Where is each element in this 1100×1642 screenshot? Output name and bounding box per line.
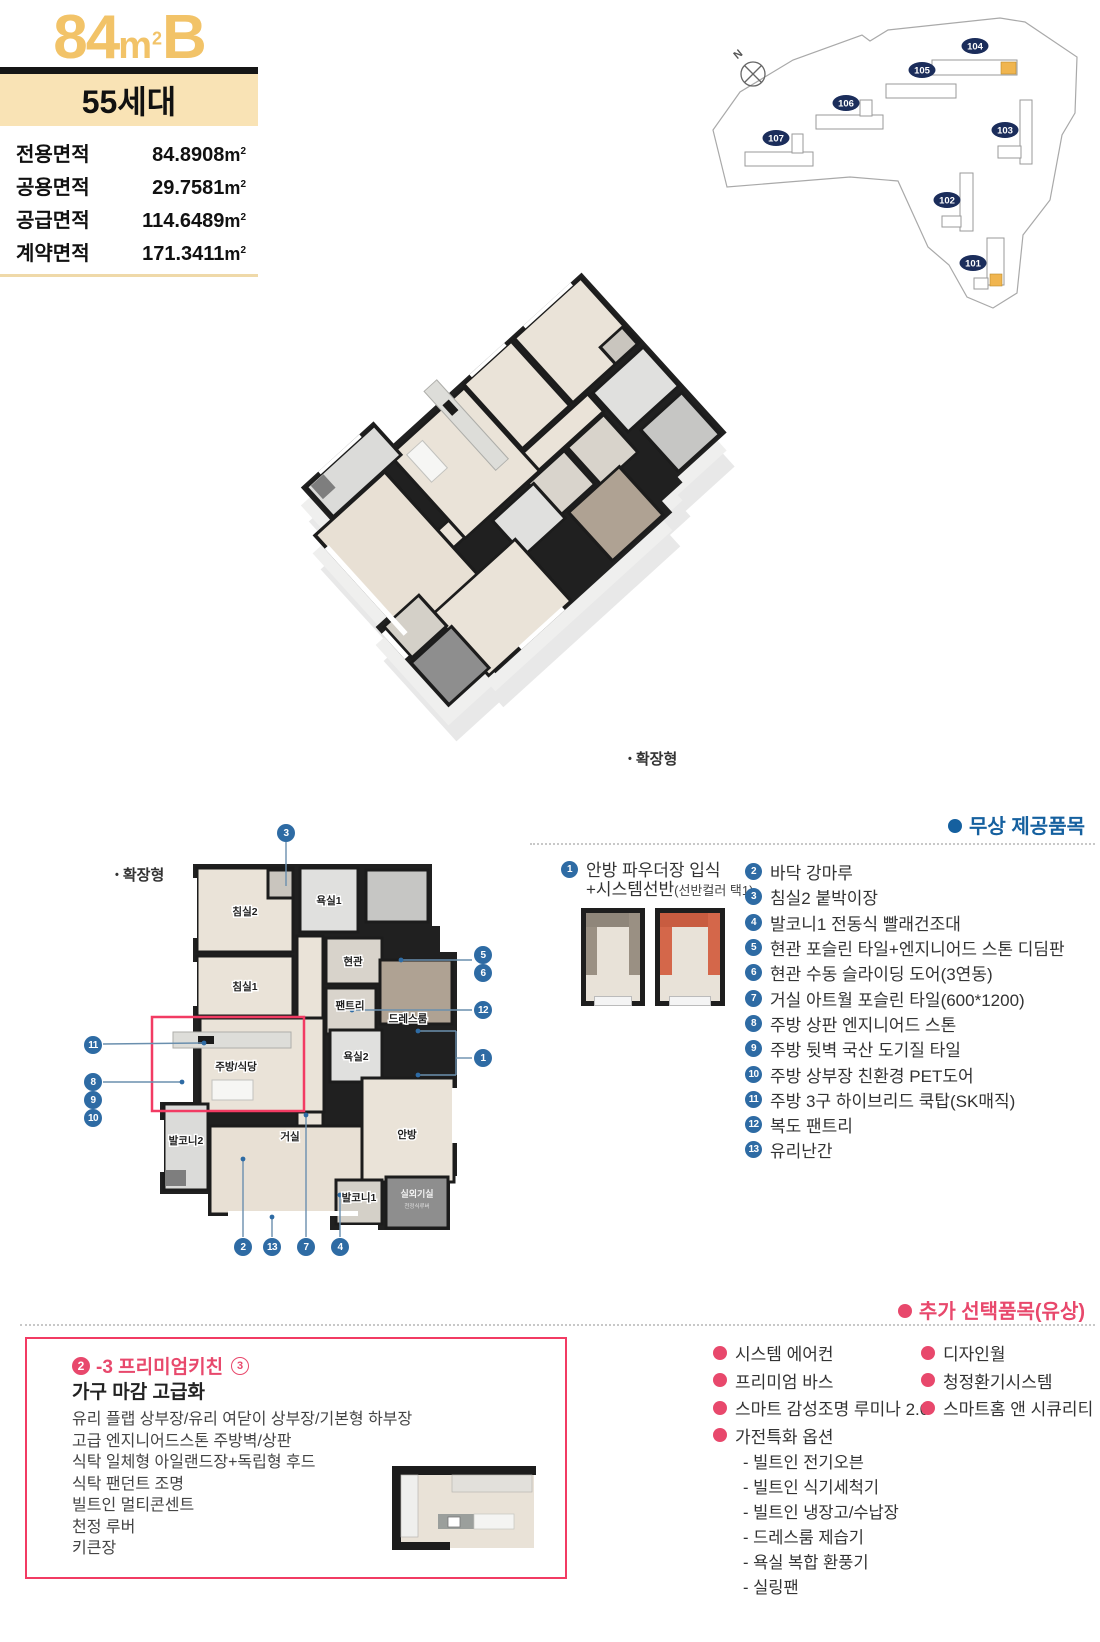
compass-north-label: N <box>732 47 746 61</box>
badge-102: 102 <box>934 192 961 208</box>
svg-text:101: 101 <box>965 259 982 270</box>
spec-line: 천정 루버 <box>72 1517 412 1539</box>
plan-callout-2: 2 <box>234 1238 252 1256</box>
pink-dot-icon <box>713 1373 727 1387</box>
free-item-row: 9주방 뒷벽 국산 도기질 타일 <box>745 1036 1065 1061</box>
paid-items-header: 추가 선택품목(유상) <box>830 1295 1085 1324</box>
free-item-row: 11주방 3구 하이브리드 쿡탑(SK매직) <box>745 1087 1065 1112</box>
unit-area-unit: m2 <box>118 25 162 67</box>
paid-option: 시스템 에어컨 <box>713 1339 929 1367</box>
sub-option: - 드레스룸 제습기 <box>743 1526 929 1551</box>
free-item-1-line1: 안방 파우더장 입식 <box>586 861 753 880</box>
shelf-right <box>708 913 720 975</box>
badge-106: 106 <box>833 95 860 111</box>
item-number-badge: 9 <box>745 1040 762 1057</box>
free-item-row: 2바닥 강마루 <box>745 859 1065 884</box>
pink-dot-icon <box>713 1428 727 1442</box>
spec-line: 식탁 팬던트 조명 <box>72 1474 412 1496</box>
plan-callout-7: 7 <box>297 1238 315 1256</box>
svg-text:106: 106 <box>838 99 854 110</box>
svg-text:107: 107 <box>768 134 784 145</box>
spec-line: 유리 플랩 상부장/유리 여닫이 상부장/기본형 하부장 <box>72 1409 412 1431</box>
free-item-row: 6현관 수동 슬라이딩 도어(3연동) <box>745 960 1065 985</box>
door-opening <box>594 996 632 1006</box>
badge-107: 107 <box>763 130 790 146</box>
pink-dot-icon <box>921 1401 935 1415</box>
paid-option: 디자인월 <box>921 1339 1093 1367</box>
free-item-1-line2: +시스템선반(선반컬러 택1) <box>586 880 753 900</box>
svg-text:103: 103 <box>997 126 1013 137</box>
pink-dot-icon <box>921 1373 935 1387</box>
circle-number-badge: 2 <box>72 1357 90 1375</box>
plan-callout-13: 13 <box>263 1238 281 1256</box>
label-bedroom1: 침실1 <box>232 980 257 993</box>
item-number-badge: 6 <box>745 964 762 981</box>
paid-option: 가전특화 옵션 <box>713 1422 929 1450</box>
label-master: 안방 <box>397 1128 417 1141</box>
area-row: 공용면적 29.7581m2 <box>0 171 258 204</box>
free-item-row: 3침실2 붙박이장 <box>745 884 1065 909</box>
plan-callout-8: 8 <box>84 1073 102 1091</box>
item-number-badge: 3 <box>745 888 762 905</box>
area-row: 공급면적 114.6489m2 <box>0 204 258 237</box>
paid-option: 프리미엄 바스 <box>713 1367 929 1395</box>
badge-104: 104 <box>962 38 989 54</box>
area-row: 전용면적 84.8908m2 <box>0 138 258 171</box>
free-item-row: 12복도 팬트리 <box>745 1112 1065 1137</box>
pink-dot-icon <box>898 1304 912 1318</box>
free-item-row: 8주방 상판 엔지니어드 스톤 <box>745 1011 1065 1036</box>
premium-kitchen-specs: 유리 플랩 상부장/유리 여닫이 상부장/기본형 하부장 고급 엔지니어드스톤 … <box>72 1409 412 1560</box>
label-living: 거실 <box>280 1130 299 1143</box>
free-item-row: 7거실 아트월 포슬린 타일(600*1200) <box>745 985 1065 1010</box>
free-item-row: 4발코니1 전동식 빨래건조대 <box>745 910 1065 935</box>
powder-option-thumbnail-2 <box>655 908 725 1006</box>
plan-callout-9: 9 <box>84 1091 102 1109</box>
item-number-badge: 10 <box>745 1066 762 1083</box>
premium-kitchen-box: 2 -3 프리미엄키친 3 가구 마감 고급화 유리 플랩 상부장/유리 여닫이… <box>25 1337 567 1579</box>
free-item-1: 1 안방 파우더장 입식 +시스템선반(선반컬러 택1) <box>561 861 753 900</box>
paid-options-col2: 디자인월 청정환기시스템 스마트홈 앤 시큐리티 <box>921 1339 1093 1422</box>
powder-option-thumbnail-1 <box>581 908 645 1006</box>
item-number-badge: 8 <box>745 1015 762 1032</box>
item-number-badge: 11 <box>745 1091 762 1108</box>
plan-callout-4: 4 <box>331 1238 349 1256</box>
sub-option: - 실링팬 <box>743 1576 929 1601</box>
spec-line: 고급 엔지니어드스톤 주방벽/상판 <box>72 1431 412 1453</box>
premium-kitchen-title: 2 -3 프리미엄키친 3 <box>72 1352 249 1379</box>
pink-dot-icon <box>713 1401 727 1415</box>
plan3d-type-label: •확장형 <box>628 748 677 769</box>
free-items-divider <box>530 843 1095 845</box>
highlight-unit-101 <box>990 274 1002 286</box>
highlight-unit-104 <box>1001 62 1016 74</box>
item-number-badge: 7 <box>745 990 762 1007</box>
plan-callout-1: 1 <box>474 1049 492 1067</box>
plan-callout-10: 10 <box>84 1109 102 1127</box>
spec-line: 식탁 일체형 아일랜드장+독립형 후드 <box>72 1452 412 1474</box>
paid-items-divider <box>20 1324 1095 1326</box>
area-row: 계약면적 171.3411m2 <box>0 237 258 270</box>
label-outdoor-unit-sub: 천정식루버 <box>404 1202 429 1210</box>
plan2d-type-label: •확장형 <box>115 864 164 885</box>
plan-callout-5: 5 <box>474 946 492 964</box>
sub-option: - 빌트인 전기오븐 <box>743 1451 929 1476</box>
label-bedroom2: 침실2 <box>232 905 257 918</box>
blue-dot-icon <box>948 819 962 833</box>
unit-title: 84m2B <box>0 2 258 73</box>
label-kitchen: 주방/식당 <box>215 1060 257 1073</box>
label-pantry: 팬트리 <box>336 999 365 1012</box>
floorplan-3d-geometry <box>272 251 741 712</box>
free-item-row: 5현관 포슬린 타일+엔지니어드 스톤 디딤판 <box>745 935 1065 960</box>
spec-line: 키큰장 <box>72 1538 412 1560</box>
svg-text:105: 105 <box>914 66 931 77</box>
label-bath2: 욕실2 <box>343 1050 368 1063</box>
unit-number: 84 <box>53 3 118 72</box>
free-item-row: 10주방 상부장 친환경 PET도어 <box>745 1061 1065 1086</box>
label-balcony2: 발코니2 <box>169 1134 204 1147</box>
brochure-page: 84m2B 55세대 전용면적 84.8908m2 공용면적 29.7581m2… <box>0 0 1100 1642</box>
table-underline <box>0 274 258 277</box>
sub-option: - 욕실 복합 환풍기 <box>743 1551 929 1576</box>
plan-callout-12: 12 <box>474 1001 492 1019</box>
floorplan-3d <box>230 230 790 770</box>
compass-icon <box>741 62 765 86</box>
pink-dot-icon <box>713 1346 727 1360</box>
label-dressroom: 드레스룸 <box>389 1012 428 1025</box>
svg-text:102: 102 <box>939 196 955 207</box>
item-number-badge: 2 <box>745 863 762 880</box>
plan-callout-3: 3 <box>277 824 295 842</box>
floorplan-2d: 침실2 욕실1 현관 침실1 팬트리 드레스룸 욕실2 주방/식당 발코니2 거… <box>60 790 520 1260</box>
paid-options-col1: 시스템 에어컨 프리미엄 바스 스마트 감성조명 루미나 2.0 가전특화 옵션… <box>713 1339 929 1601</box>
floorplan-2d-wrap: 침실2 욕실1 현관 침실1 팬트리 드레스룸 욕실2 주방/식당 발코니2 거… <box>60 790 520 1260</box>
pink-dot-icon <box>921 1346 935 1360</box>
spec-line: 빌트인 멀티콘센트 <box>72 1495 412 1517</box>
item-number-badge: 1 <box>561 861 578 878</box>
unit-type-letter: B <box>162 3 205 72</box>
premium-kitchen-plan-image <box>392 1462 536 1555</box>
bullet-icon: • <box>115 869 119 881</box>
paid-option: 청정환기시스템 <box>921 1367 1093 1395</box>
label-outdoor-unit: 실외기실 <box>400 1188 433 1199</box>
shelf-right <box>629 913 640 975</box>
sub-option: - 빌트인 식기세척기 <box>743 1476 929 1501</box>
badge-105: 105 <box>909 62 936 78</box>
paid-option: 스마트 감성조명 루미나 2.0 <box>713 1394 929 1422</box>
item-number-badge: 5 <box>745 939 762 956</box>
label-entrance: 현관 <box>343 955 363 968</box>
free-items-header: 무상 제공품목 <box>830 810 1085 839</box>
badge-101: 101 <box>960 255 987 271</box>
plan-callout-11: 11 <box>84 1036 102 1054</box>
paid-option: 스마트홈 앤 시큐리티 <box>921 1394 1093 1422</box>
bullet-icon: • <box>628 753 632 765</box>
circled-number-icon: 3 <box>231 1357 249 1375</box>
sub-option: - 빌트인 냉장고/수납장 <box>743 1501 929 1526</box>
svg-text:104: 104 <box>967 42 984 53</box>
households-band: 55세대 <box>0 74 258 126</box>
area-table: 전용면적 84.8908m2 공용면적 29.7581m2 공급면적 114.6… <box>0 138 258 270</box>
label-balcony1: 발코니1 <box>342 1191 377 1204</box>
item-number-badge: 13 <box>745 1141 762 1158</box>
plan-callout-6: 6 <box>474 964 492 982</box>
label-bath1: 욕실1 <box>316 894 341 907</box>
item-number-badge: 4 <box>745 914 762 931</box>
door-opening <box>669 996 711 1006</box>
premium-kitchen-subtitle: 가구 마감 고급화 <box>72 1377 205 1404</box>
item-number-badge: 12 <box>745 1116 762 1133</box>
appliance-sub-options: - 빌트인 전기오븐 - 빌트인 식기세척기 - 빌트인 냉장고/수납장 - 드… <box>713 1451 929 1601</box>
badge-103: 103 <box>992 122 1019 138</box>
free-items-list: 2바닥 강마루 3침실2 붙박이장 4발코니1 전동식 빨래건조대 5현관 포슬… <box>745 859 1065 1163</box>
header-divider <box>0 67 258 74</box>
free-item-row: 13유리난간 <box>745 1137 1065 1162</box>
households-count: 55세대 <box>82 77 176 123</box>
